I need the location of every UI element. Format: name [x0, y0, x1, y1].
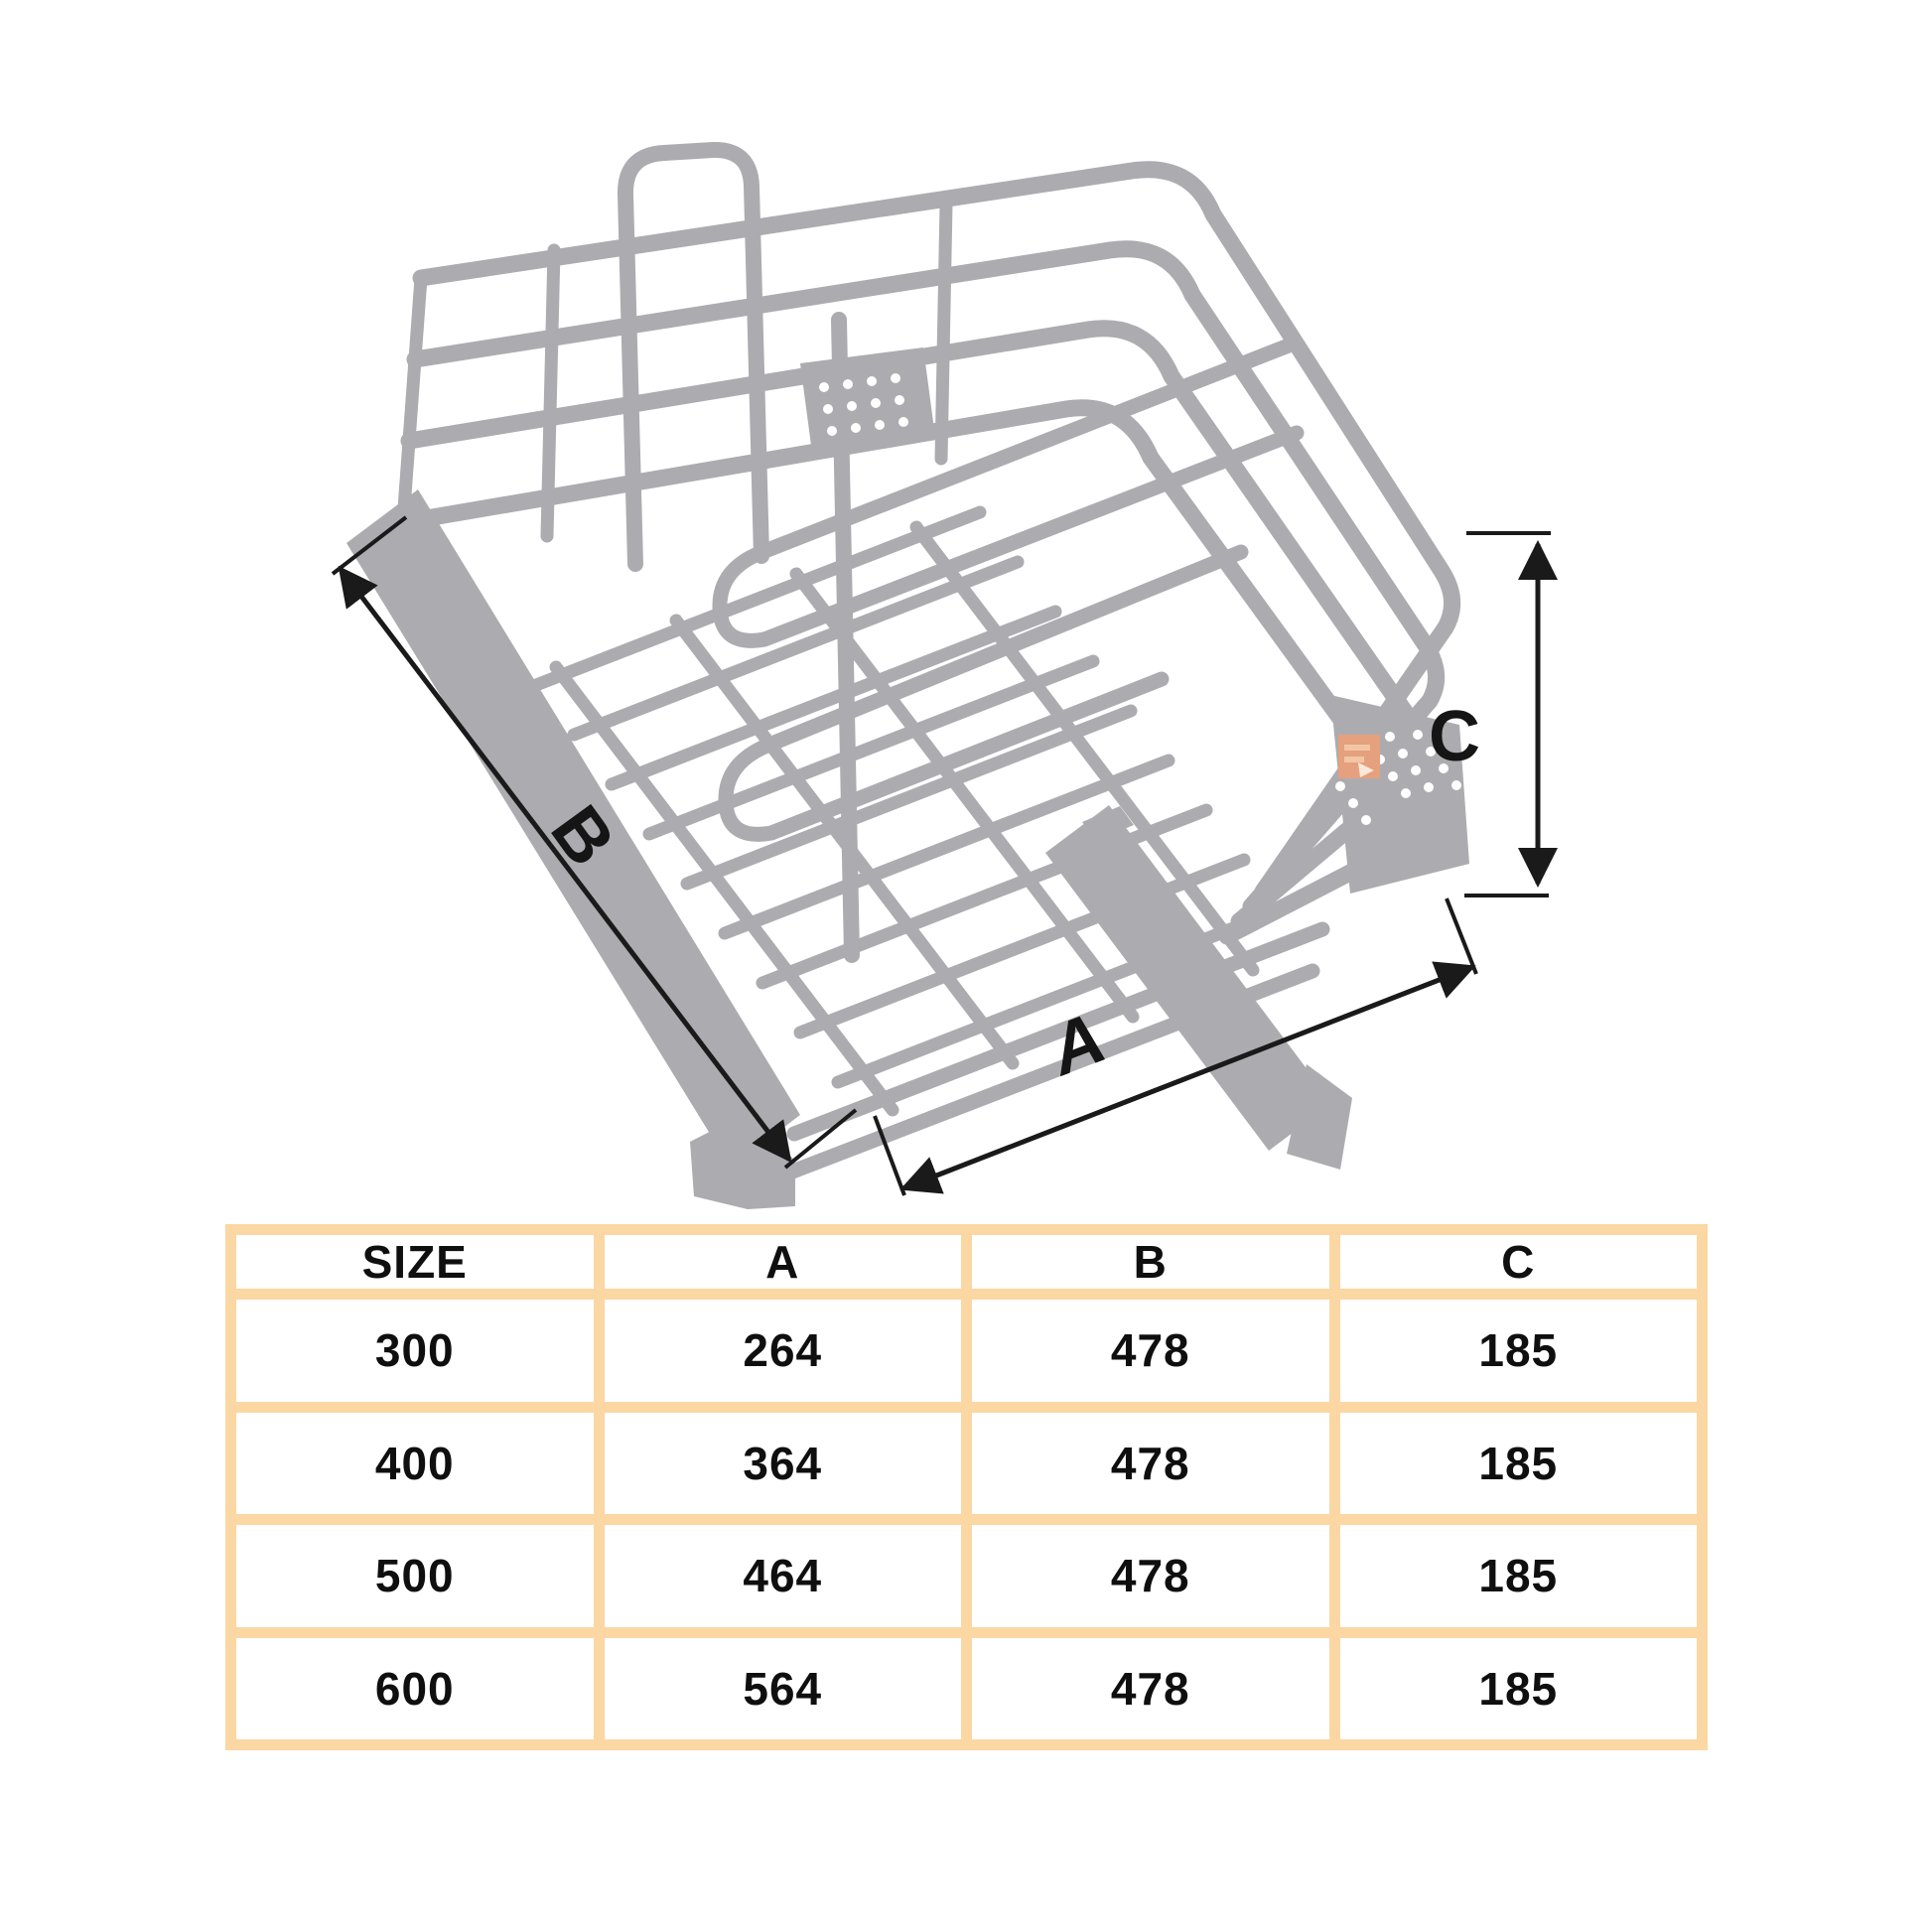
size-table-header-row: SIZE A B C: [236, 1235, 1697, 1289]
table-cell: 478: [972, 1525, 1329, 1627]
header-a: A: [605, 1235, 962, 1289]
table-cell: 300: [236, 1300, 594, 1402]
table-cell: 478: [972, 1413, 1329, 1515]
table-row: 400364478185: [236, 1413, 1697, 1515]
back-vertical-wire-2: [941, 205, 946, 459]
size-table: SIZE A B C 30026447818540036447818550046…: [225, 1224, 1708, 1750]
table-cell: 564: [605, 1638, 962, 1740]
table-cell: 400: [236, 1413, 594, 1515]
brand-watermark: [1338, 735, 1380, 778]
header-b: B: [972, 1235, 1329, 1289]
table-cell: 464: [605, 1525, 962, 1627]
table-cell: 185: [1340, 1638, 1698, 1740]
table-row: 500464478185: [236, 1525, 1697, 1627]
table-cell: 185: [1340, 1525, 1698, 1627]
table-cell: 185: [1340, 1413, 1698, 1515]
table-cell: 478: [972, 1300, 1329, 1402]
table-cell: 478: [972, 1638, 1329, 1740]
size-table-head: SIZE A B C: [236, 1235, 1697, 1289]
rail-left-connector: [403, 278, 421, 522]
table-cell: 500: [236, 1525, 594, 1627]
header-c: C: [1340, 1235, 1698, 1289]
dimension-c-label: C: [1429, 697, 1480, 776]
table-cell: 264: [605, 1300, 962, 1402]
back-vertical-wire-1: [547, 250, 554, 536]
product-dimension-sheet: B A C SIZE A B C 300: [0, 0, 1932, 1932]
table-cell: 185: [1340, 1300, 1698, 1402]
basket-wires: [403, 150, 1452, 1175]
table-cell: 364: [605, 1413, 962, 1515]
size-table-body: 3002644781854003644781855004644781856005…: [236, 1300, 1697, 1739]
handle-loop: [625, 150, 761, 564]
dimension-a-tick-end: [1447, 898, 1476, 974]
header-size: SIZE: [236, 1235, 594, 1289]
table-cell: 600: [236, 1638, 594, 1740]
table-row: 300264478185: [236, 1300, 1697, 1402]
table-row: 600564478185: [236, 1638, 1697, 1740]
